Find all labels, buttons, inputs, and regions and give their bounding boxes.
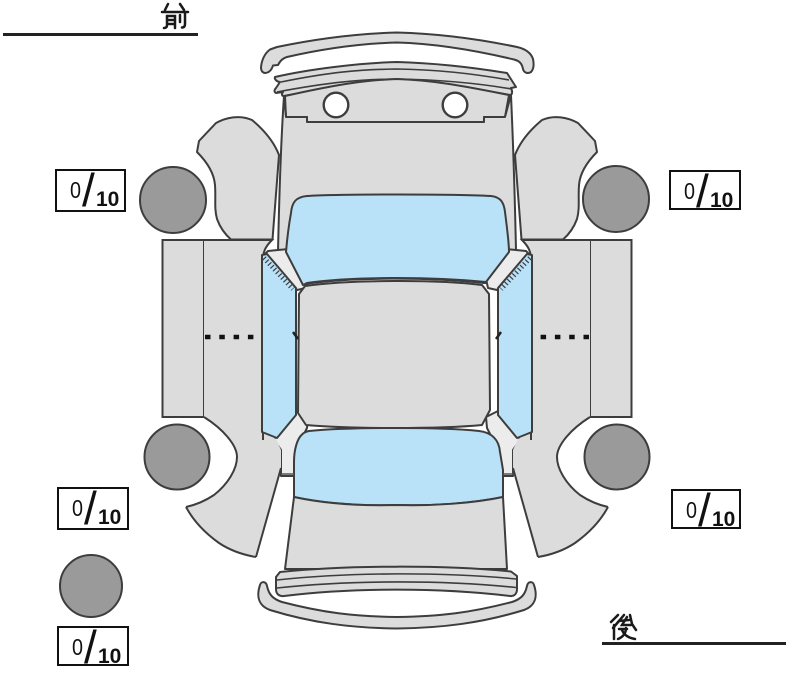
svg-text:10: 10 xyxy=(96,188,119,211)
svg-text:/: / xyxy=(84,482,97,534)
svg-text:10: 10 xyxy=(712,508,735,531)
svg-text:0: 0 xyxy=(684,178,695,204)
svg-text:/: / xyxy=(84,621,97,673)
svg-text:0: 0 xyxy=(72,634,83,660)
svg-text:/: / xyxy=(82,164,95,216)
svg-text:0: 0 xyxy=(70,177,81,203)
svg-text:/: / xyxy=(696,165,709,217)
svg-text:0: 0 xyxy=(72,495,83,521)
svg-text:10: 10 xyxy=(98,506,121,529)
svg-text:10: 10 xyxy=(98,645,121,668)
svg-text:10: 10 xyxy=(710,189,733,212)
svg-text:0: 0 xyxy=(686,497,697,523)
svg-text:/: / xyxy=(698,484,711,536)
